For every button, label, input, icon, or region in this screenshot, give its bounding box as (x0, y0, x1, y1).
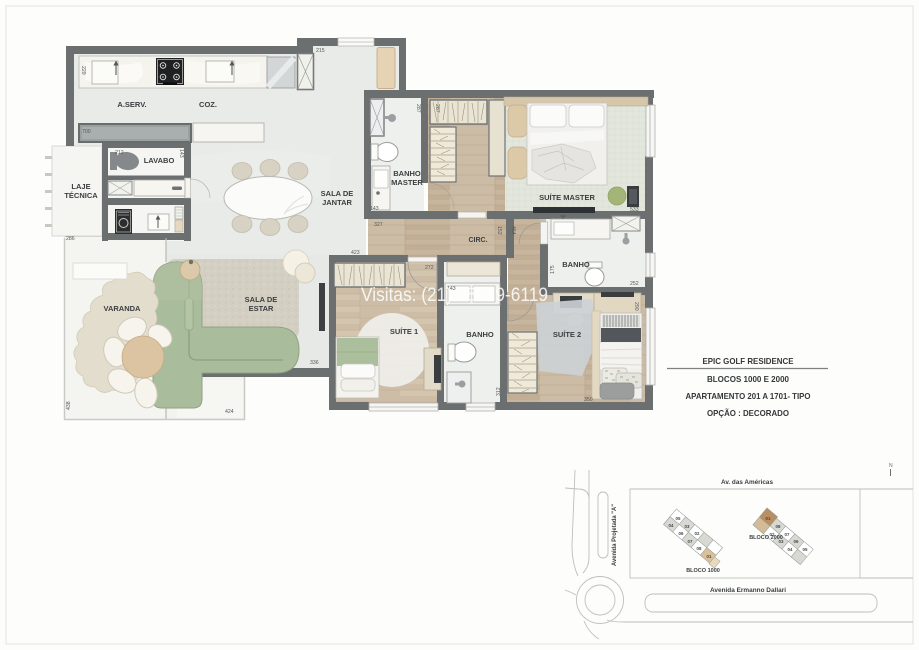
svg-text:423: 423 (351, 250, 360, 256)
svg-text:287: 287 (415, 104, 421, 113)
svg-text:350: 350 (584, 397, 593, 403)
svg-text:SUÍTE 1: SUÍTE 1 (390, 327, 418, 336)
svg-text:533: 533 (630, 207, 639, 213)
svg-text:SALA DE: SALA DE (245, 295, 278, 304)
svg-text:286: 286 (66, 236, 75, 242)
svg-text:327: 327 (374, 222, 383, 228)
svg-text:700: 700 (82, 129, 91, 135)
svg-text:SALA DE: SALA DE (321, 189, 354, 198)
svg-text:Av. das Américas: Av. das Américas (721, 480, 774, 486)
svg-text:03: 03 (685, 524, 690, 529)
svg-text:SUÍTE 2: SUÍTE 2 (553, 330, 581, 339)
svg-text:Avenida Projetada "A": Avenida Projetada "A" (612, 504, 618, 566)
svg-text:BLOCO 1000: BLOCO 1000 (686, 568, 720, 574)
svg-text:215: 215 (316, 48, 325, 54)
svg-text:LAJE: LAJE (71, 182, 90, 191)
svg-text:272: 272 (425, 265, 434, 271)
svg-text:BLOCOS 1000 E 2000: BLOCOS 1000 E 2000 (707, 374, 789, 384)
svg-text:N: N (889, 463, 893, 469)
svg-text:438: 438 (66, 401, 72, 410)
svg-text:152: 152 (496, 226, 502, 235)
svg-text:LAVABO: LAVABO (144, 156, 175, 165)
svg-text:07: 07 (785, 532, 790, 537)
svg-text:424: 424 (225, 409, 234, 415)
svg-text:MASTER: MASTER (391, 178, 423, 187)
svg-text:VARANDA: VARANDA (104, 304, 142, 313)
svg-text:BANHO: BANHO (393, 169, 421, 178)
svg-text:06: 06 (679, 531, 684, 536)
svg-text:01: 01 (707, 554, 712, 559)
svg-text:SUÍTE MASTER: SUÍTE MASTER (539, 193, 595, 202)
svg-text:07: 07 (688, 539, 693, 544)
svg-text:08: 08 (776, 524, 781, 529)
svg-text:BANHO: BANHO (466, 330, 494, 339)
svg-text:143: 143 (178, 149, 184, 158)
svg-text:Avenida Ermanno Dallari: Avenida Ermanno Dallari (710, 587, 786, 594)
svg-text:252: 252 (630, 281, 639, 287)
svg-text:312: 312 (496, 387, 502, 396)
svg-text:02: 02 (695, 531, 700, 536)
svg-text:COZ.: COZ. (199, 100, 217, 109)
svg-text:BANHO: BANHO (562, 260, 590, 269)
svg-text:Visitas: (21) 98019-6119: Visitas: (21) 98019-6119 (361, 285, 548, 306)
svg-text:287: 287 (434, 104, 440, 113)
svg-text:212: 212 (115, 150, 124, 156)
svg-text:336: 336 (310, 360, 319, 366)
svg-text:229: 229 (80, 66, 86, 75)
svg-text:OPÇÃO : DECORADO: OPÇÃO : DECORADO (707, 408, 789, 418)
svg-text:175: 175 (550, 265, 556, 274)
svg-text:08: 08 (697, 546, 702, 551)
svg-text:JANTAR: JANTAR (322, 198, 352, 207)
svg-text:143: 143 (370, 206, 379, 212)
svg-text:A.SERV.: A.SERV. (117, 100, 146, 109)
svg-text:EPIC GOLF RESIDENCE: EPIC GOLF RESIDENCE (703, 356, 794, 366)
svg-text:05: 05 (803, 547, 808, 552)
svg-text:ESTAR: ESTAR (249, 304, 274, 313)
svg-text:BLOCO 2000: BLOCO 2000 (749, 535, 783, 541)
svg-text:06: 06 (794, 539, 799, 544)
svg-text:04: 04 (788, 547, 793, 552)
svg-text:04: 04 (669, 523, 674, 528)
svg-text:TÉCNICA: TÉCNICA (64, 191, 98, 200)
svg-text:01: 01 (766, 516, 771, 521)
svg-text:APARTAMENTO 201 A 1701- TIPO: APARTAMENTO 201 A 1701- TIPO (686, 391, 811, 401)
svg-text:464: 464 (510, 226, 516, 235)
svg-text:CIRC.: CIRC. (468, 237, 487, 244)
svg-text:05: 05 (676, 516, 681, 521)
svg-text:290: 290 (633, 302, 639, 311)
